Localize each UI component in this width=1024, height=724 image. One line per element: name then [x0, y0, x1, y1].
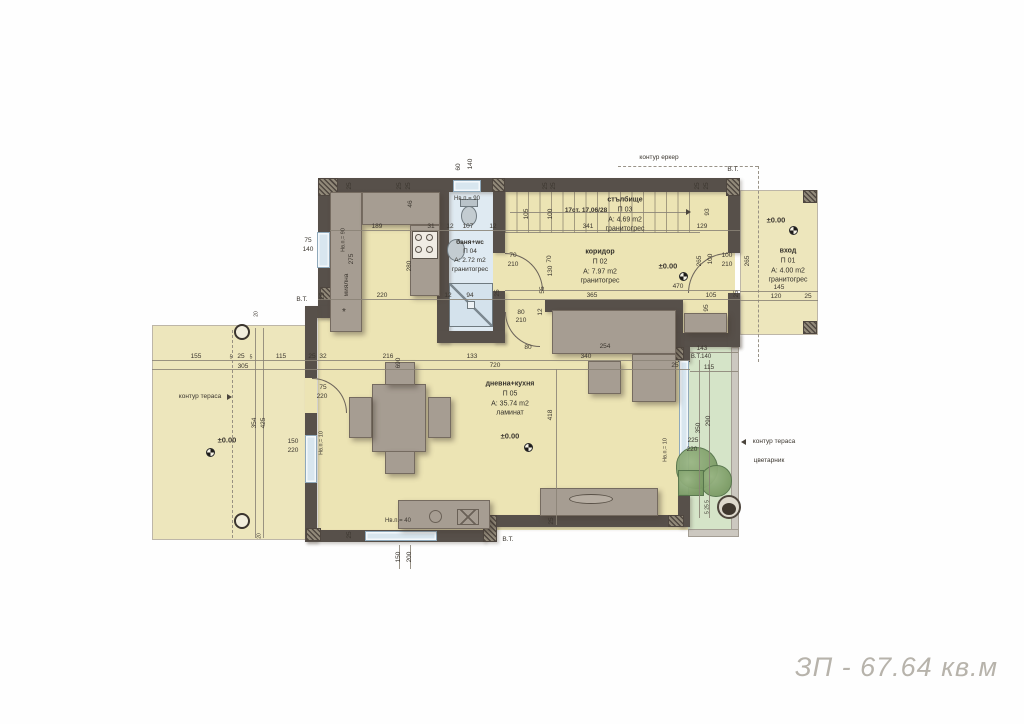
dimension-label: 25 [549, 517, 556, 524]
dimension-label: 220 [288, 448, 299, 455]
dimension-label: 25 [397, 182, 404, 189]
dimension-label: 5 [250, 356, 253, 361]
dimension-label: 133 [467, 354, 478, 361]
dimension-label: 5 [230, 356, 233, 361]
dimension-label: 265 [745, 256, 752, 267]
dimension-label: 145 [774, 285, 785, 292]
dimension-label: В.Т. [727, 167, 738, 174]
dimension-label: 25 [734, 290, 741, 297]
dimension-label: 95 [704, 304, 711, 311]
dimension-label: 150 [396, 552, 403, 563]
dimension-label: 20 [255, 311, 260, 317]
dimension-label: ±0.00 [501, 432, 520, 440]
dimension-label: В.Т. [296, 297, 307, 304]
dimension-label: 60 [456, 163, 463, 170]
dimension-label: 25 [347, 531, 354, 538]
dimension-label: 265 [697, 256, 704, 267]
dimension-label: 107 [463, 224, 474, 231]
dimension-label: 150 [288, 439, 299, 446]
dimension-label: 12 [538, 308, 545, 315]
dimension-label: контур тераса [753, 439, 795, 446]
dimension-label: 365 [587, 293, 598, 300]
dimension-label: 225 [688, 438, 699, 445]
dimension-label: 25 [695, 182, 702, 189]
dimension-label: 12 [489, 224, 496, 231]
dimension-label: 25 [320, 292, 327, 299]
dimension-label: 105 [706, 293, 717, 300]
dimension-label: ±0.00 [218, 436, 237, 444]
dimension-label: 94 [466, 293, 473, 300]
dimension-label: 105 [524, 209, 531, 220]
dimension-label: ±0.00 [767, 216, 786, 224]
dimension-label: 25 [495, 289, 502, 296]
dimension-label: 25 [543, 182, 550, 189]
dimension-label: В.Т. [502, 537, 513, 544]
dimension-label: контур еркер [639, 155, 678, 162]
dimension-label: миялна [344, 274, 351, 297]
dimension-label: 350 [696, 423, 703, 434]
dimension-label: 220 [687, 447, 698, 454]
dimension-label: 189 [372, 224, 383, 231]
dimension-label: 140 [468, 159, 475, 170]
dimension-label: контур тераса [179, 394, 221, 401]
dimension-label: 25 [347, 182, 354, 189]
dimension-label: ±0.00 [659, 262, 678, 270]
dimension-label: 32 [319, 354, 326, 361]
dimension-label: 31 [427, 224, 434, 231]
dimension-label: 115 [704, 365, 714, 372]
dimension-label: 25 [551, 182, 558, 189]
dimension-label: 220 [317, 394, 328, 401]
dimension-label: 20 [258, 533, 263, 539]
dimension-label: 305 [238, 364, 249, 371]
dimension-label: Нв.п.= 90 [454, 196, 480, 202]
dimension-label: 720 [490, 363, 501, 370]
dimension-label: Нв.п.= 10 [663, 438, 669, 462]
dimension-label: 5 25 5 [706, 500, 711, 514]
dimension-label: Нв.п.= 40 [385, 518, 411, 524]
dimension-label: 130 [548, 266, 555, 277]
dimension-label: 120 [771, 294, 782, 301]
dimension-label: 100 [722, 253, 733, 260]
dimension-label: 80 [517, 310, 524, 317]
dimension-label: 210 [722, 262, 733, 269]
dimension-label: 280 [407, 261, 414, 272]
dimension-label: 25 [237, 354, 244, 361]
dimension-label: 12 [444, 293, 451, 300]
dimension-label: 46 [408, 200, 415, 207]
dimension-label: * [342, 308, 346, 318]
dimension-label: 100 [548, 209, 555, 220]
dimension-layer: контур еркерВ.Т.601402525252525252518931… [0, 0, 1024, 724]
dimension-label: Нв.п.= 10 [319, 431, 325, 455]
dimension-label: 690 [396, 358, 403, 369]
dimension-label: 341 [583, 224, 594, 231]
dimension-label: 210 [508, 262, 519, 269]
dimension-label: 70 [509, 253, 516, 260]
dimension-label: 354 [252, 418, 259, 429]
dimension-label: 254 [600, 344, 611, 351]
dimension-label: 155 [191, 354, 202, 361]
dimension-label: 425 [261, 418, 268, 429]
dimension-label: 200 [407, 552, 414, 563]
dimension-label: 55 [540, 286, 547, 293]
dimension-label: 275 [349, 254, 356, 265]
total-area-label: ЗП - 67.64 кв.м [795, 652, 998, 683]
floor-plan-canvas: стълбищеП 03 A: 4.69 m2гранитогрес корид… [0, 0, 1024, 724]
dimension-label: Нв.п.= 90 [341, 228, 347, 252]
dimension-label: цветарник [754, 458, 785, 465]
dimension-label: В.Т.140 [691, 354, 711, 360]
dimension-label: 75 [319, 385, 326, 392]
dimension-label: 12 [446, 224, 453, 231]
dimension-label: 115 [276, 354, 286, 361]
dimension-label: 129 [697, 224, 708, 231]
dimension-label: 93 [705, 208, 712, 215]
dimension-label: 220 [377, 293, 388, 300]
dimension-label: 25 [704, 182, 711, 189]
dimension-label: 25 [308, 354, 315, 361]
dimension-label: 25 [804, 294, 811, 301]
dimension-label: 17ст. 17,06/28 [565, 208, 607, 215]
dimension-label: 340 [581, 354, 592, 361]
dimension-label: 470 [673, 284, 684, 291]
dimension-label: 25 [406, 182, 413, 189]
dimension-label: 25 [671, 363, 678, 370]
dimension-label: 210 [516, 318, 527, 325]
dimension-label: 75 [304, 238, 311, 245]
dimension-label: 140 [303, 247, 314, 254]
dimension-label: 100 [708, 254, 715, 265]
dimension-label: 80 [524, 345, 531, 352]
dimension-label: 418 [548, 410, 555, 421]
dimension-label: 143 [697, 346, 708, 353]
dimension-label: 70 [547, 255, 554, 262]
dimension-label: 290 [706, 416, 713, 427]
dimension-label: 216 [383, 354, 394, 361]
